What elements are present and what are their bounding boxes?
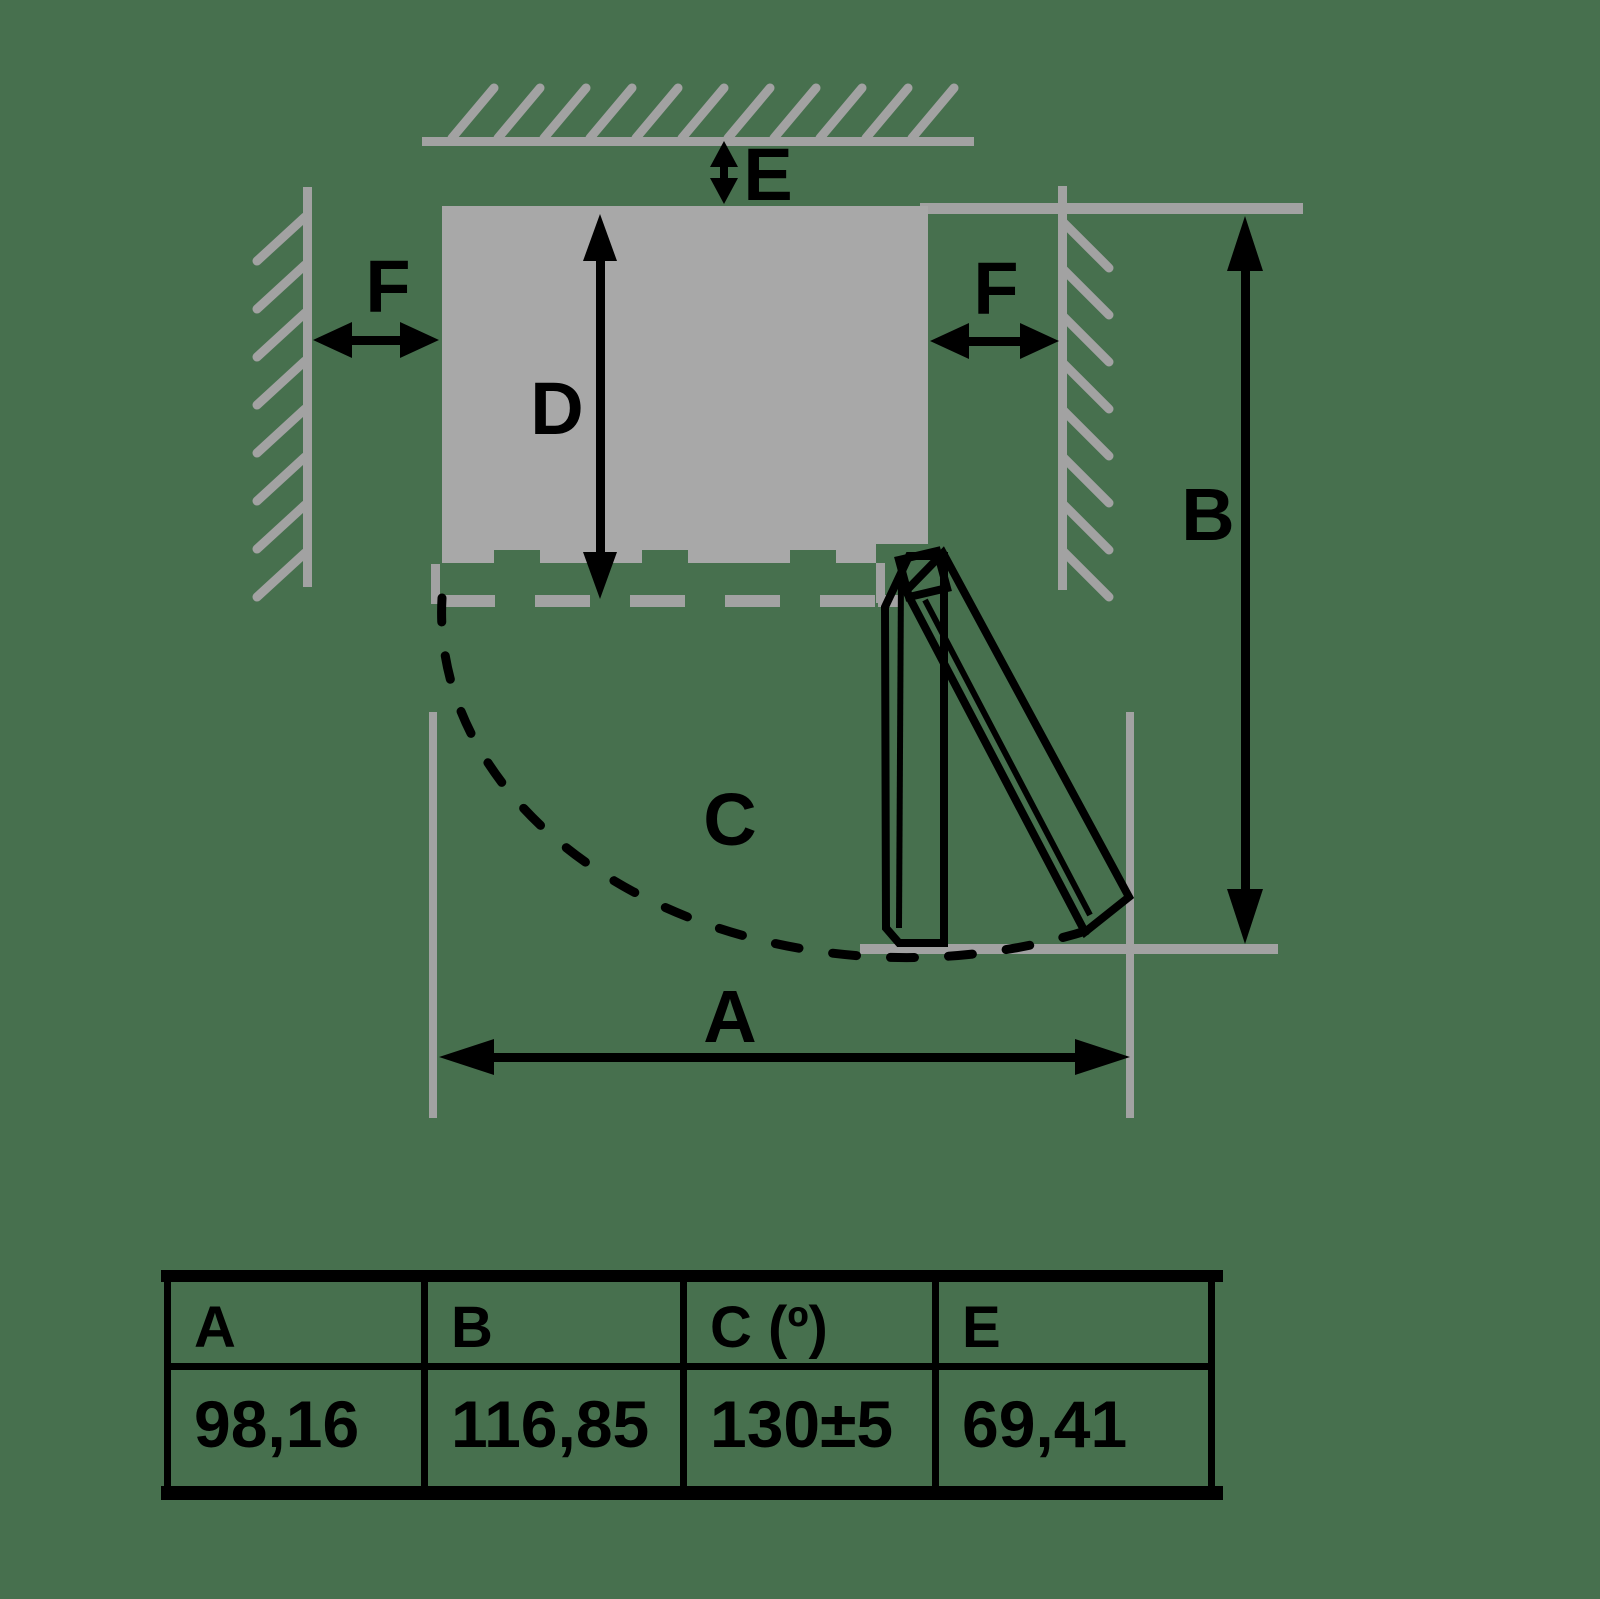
label-c: C	[703, 778, 756, 861]
arrowhead-left	[930, 323, 969, 359]
extension-line-left	[429, 712, 437, 1118]
ceiling-wall	[422, 88, 974, 146]
arrowhead-left	[439, 1039, 494, 1075]
front-notch	[494, 550, 540, 564]
arrowhead-left	[313, 322, 352, 358]
left-wall-line	[303, 187, 312, 587]
front-notch	[790, 550, 836, 564]
label-d: D	[530, 367, 583, 450]
label-f-left: F	[365, 245, 410, 328]
value-cell-a: 98,16	[171, 1370, 428, 1486]
arrow-shaft	[720, 163, 728, 182]
left-wall-hatching	[257, 217, 305, 597]
header-cell-e: E	[939, 1282, 1208, 1363]
arrow-shaft	[348, 336, 404, 345]
door-open-90-face-line	[899, 575, 901, 928]
ceiling-hatching	[452, 88, 954, 138]
arrowhead-down	[583, 552, 617, 599]
arrowhead-down	[1227, 889, 1263, 944]
label-b: B	[1181, 473, 1234, 556]
table-value-row: 98,16 116,85 130±5 69,41	[171, 1370, 1208, 1486]
left-wall	[257, 187, 312, 597]
label-f-right: F	[973, 247, 1018, 330]
arrow-shaft	[965, 337, 1025, 346]
value-cell-e: 69,41	[939, 1370, 1208, 1486]
dimensions-table: A B C (º) E 98,16 116,85 130±5 69,41	[164, 1282, 1215, 1486]
header-cell-c: C (º)	[687, 1282, 939, 1363]
arrowhead-right	[1020, 323, 1059, 359]
table-bottom-border	[161, 1486, 1223, 1500]
door-open-130-outline	[906, 553, 1129, 932]
header-cell-a: A	[171, 1282, 428, 1363]
arrowhead-up	[1227, 216, 1263, 271]
closed-door-right-cap	[876, 563, 885, 603]
front-notch	[642, 550, 688, 564]
arrow-shaft	[1241, 265, 1250, 893]
value-cell-c: 130±5	[687, 1370, 939, 1486]
dimension-arrow-a	[439, 1039, 1130, 1075]
arrow-shaft	[490, 1053, 1080, 1062]
label-e: E	[743, 133, 792, 216]
appliance-top-view	[442, 206, 928, 564]
page: { "colors": { "background": "#47704e", "…	[0, 0, 1600, 1599]
header-cell-b: B	[428, 1282, 687, 1363]
door-open-position	[885, 551, 1129, 943]
arrow-shaft	[596, 255, 605, 555]
dimension-arrow-e	[710, 141, 738, 204]
appliance-body	[442, 206, 928, 563]
table-top-border	[161, 1270, 1223, 1282]
top-level-line	[920, 203, 1303, 214]
closed-door-dashed-line	[431, 563, 902, 604]
door-open-130-face-line	[925, 600, 1090, 915]
right-wall	[1058, 186, 1109, 597]
arrowhead-right	[1075, 1039, 1130, 1075]
value-cell-b: 116,85	[428, 1370, 687, 1486]
label-a: A	[703, 975, 756, 1058]
right-wall-line	[1058, 186, 1067, 590]
dimension-arrow-b	[1227, 216, 1263, 944]
right-wall-hatching	[1063, 222, 1109, 597]
table-header-row: A B C (º) E	[171, 1282, 1208, 1370]
ceiling-line	[422, 137, 974, 146]
